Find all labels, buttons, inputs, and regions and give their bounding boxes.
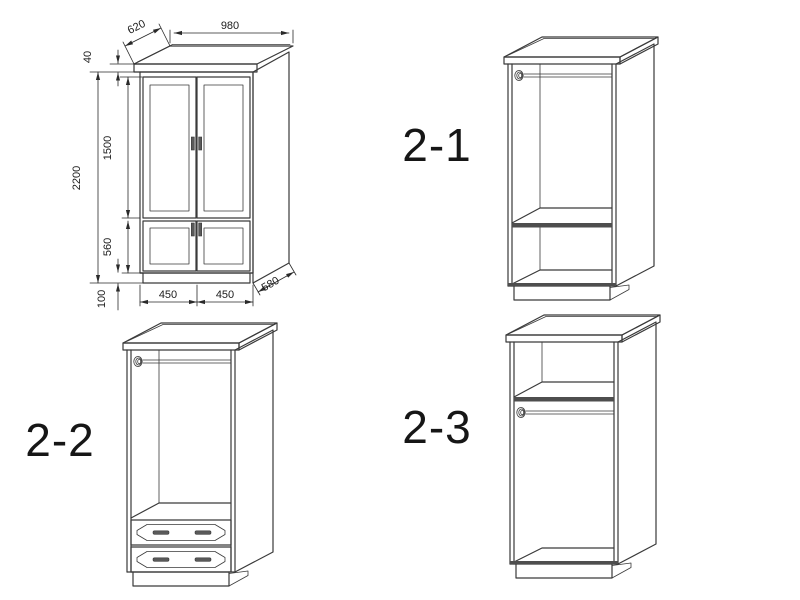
bottom-front-edge (510, 561, 618, 564)
shelf-front-edge (514, 397, 614, 402)
drawer-front-upper (131, 520, 231, 545)
dim-top-depth: 620 (126, 18, 148, 37)
upper-door-left (143, 77, 196, 218)
cornice-top (134, 46, 293, 64)
floor-top (512, 270, 612, 284)
ext-lines-1500 (120, 77, 142, 218)
shelf-top (512, 208, 612, 223)
front-view-wardrobe (134, 45, 293, 284)
dim-left-door-width: 450 (159, 289, 177, 301)
drawer-front-lower (131, 547, 231, 572)
cornice-front (134, 64, 257, 72)
bottom-front-edge (508, 283, 616, 286)
door-handle (191, 223, 194, 236)
wardrobe-technical-diagram: 980 620 40 2200 1500 560 100 (0, 0, 800, 600)
drawer-handle (153, 558, 169, 562)
view-label-2-2: 2-2 (25, 414, 94, 466)
floor-top (514, 548, 614, 562)
side-panel (253, 52, 289, 283)
hanging-rail (134, 357, 231, 367)
wardrobe-carcass (504, 37, 658, 300)
shelf-front-edge (512, 223, 612, 228)
door-handle (199, 137, 202, 150)
drawer-top-surface (131, 503, 231, 518)
lower-panel-left (150, 228, 189, 264)
dim-plinth-height: 100 (96, 290, 108, 308)
dim-total-height: 2200 (71, 166, 83, 190)
drawer-handle (195, 531, 211, 535)
view-2-3: 2-3 (402, 315, 660, 578)
view-label-2-1: 2-1 (402, 119, 471, 171)
drawer-trim-upper (137, 525, 225, 541)
view-label-2-3: 2-3 (402, 401, 471, 453)
dim-top-width: 980 (221, 20, 239, 32)
drawer-handle (153, 531, 169, 535)
view-2-3-drawing (506, 315, 660, 578)
door-handle (191, 137, 194, 150)
view-2-1-drawing (504, 37, 658, 300)
lower-door-right (197, 221, 250, 271)
plinth (143, 273, 250, 283)
lower-panel-right (204, 228, 243, 264)
lower-door-left (143, 221, 196, 271)
wardrobe-carcass (506, 315, 660, 578)
drawer-handle (195, 558, 211, 562)
diagram-svg: 980 620 40 2200 1500 560 100 (0, 0, 800, 600)
hanging-rail (515, 71, 612, 81)
front-view-drawing: 980 620 40 2200 1500 560 100 (71, 18, 296, 310)
view-2-2: 2-2 (25, 323, 277, 586)
view-2-2-drawing (123, 323, 277, 586)
upper-panel-right (204, 85, 243, 211)
upper-door-right (197, 77, 250, 218)
drawer-trim-lower (137, 552, 225, 568)
shelf-top (514, 382, 614, 397)
upper-panel-left (150, 85, 189, 211)
dim-cornice-height: 40 (82, 51, 94, 63)
hanging-rail (517, 408, 614, 418)
door-handle (199, 223, 202, 236)
dim-lower-door-height: 560 (102, 238, 114, 256)
ext-lines-40 (90, 64, 140, 72)
view-2-1: 2-1 (402, 37, 658, 300)
ext-lines-450 (140, 285, 253, 306)
dim-right-door-width: 450 (216, 289, 234, 301)
dim-upper-door-height: 1500 (102, 136, 114, 160)
